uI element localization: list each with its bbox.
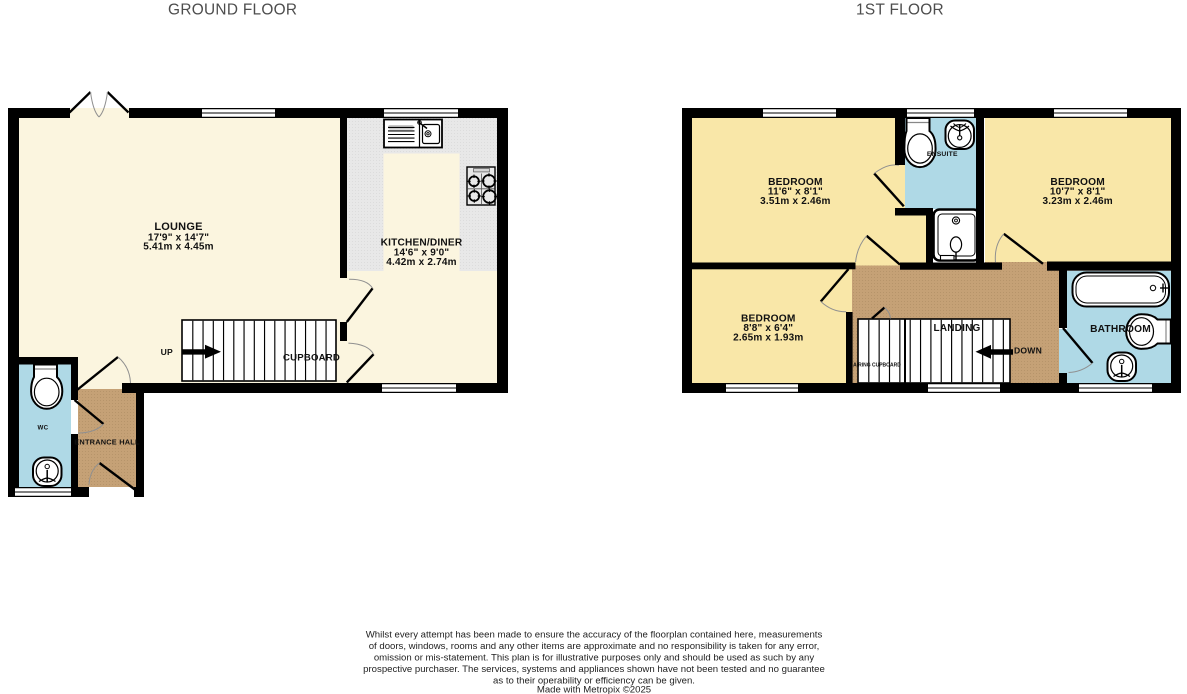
svg-text:GROUND FLOOR: GROUND FLOOR — [168, 2, 297, 19]
svg-text:BATHROOM: BATHROOM — [1090, 324, 1151, 335]
svg-text:3.23m x 2.46m: 3.23m x 2.46m — [1042, 196, 1112, 207]
svg-text:1ST FLOOR: 1ST FLOOR — [856, 2, 944, 19]
svg-text:LOUNGE: LOUNGE — [154, 221, 202, 233]
svg-text:of doors, windows, rooms and a: of doors, windows, rooms and any other i… — [369, 641, 820, 652]
svg-text:ENTRANCE HALL: ENTRANCE HALL — [74, 438, 140, 447]
svg-text:CUPBOARD: CUPBOARD — [283, 353, 340, 364]
svg-text:Made with Metropix ©2025: Made with Metropix ©2025 — [537, 684, 651, 694]
svg-text:omission or mis-statement. Thi: omission or mis-statement. This plan is … — [374, 653, 814, 664]
svg-text:UP: UP — [161, 347, 173, 357]
svg-text:ENSUITE: ENSUITE — [927, 151, 958, 158]
svg-text:WC: WC — [38, 424, 49, 431]
svg-text:LANDING: LANDING — [934, 323, 981, 334]
svg-text:2.65m x 1.93m: 2.65m x 1.93m — [733, 333, 803, 344]
svg-text:3.51m x 2.46m: 3.51m x 2.46m — [760, 196, 830, 207]
svg-text:Whilst every attempt has been: Whilst every attempt has been made to en… — [366, 630, 823, 641]
svg-text:4.42m x 2.74m: 4.42m x 2.74m — [386, 257, 456, 268]
svg-text:prospective purchaser. The ser: prospective purchaser. The services, sys… — [363, 664, 825, 675]
svg-text:5.41m x 4.45m: 5.41m x 4.45m — [143, 242, 213, 253]
svg-text:DOWN: DOWN — [1014, 346, 1042, 356]
svg-text:AIRING CUPBOARD: AIRING CUPBOARD — [853, 362, 901, 368]
